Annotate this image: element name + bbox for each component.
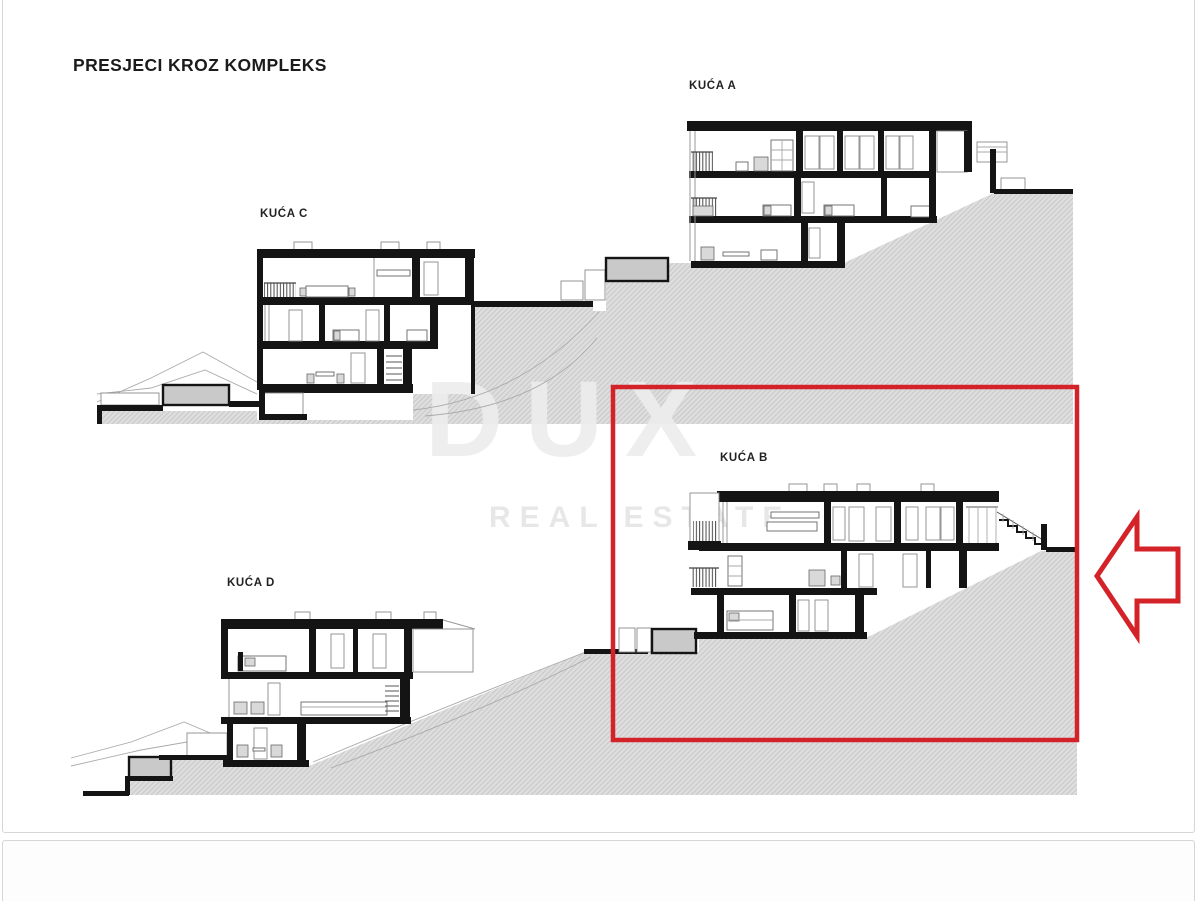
pool-lower [129, 757, 171, 778]
section-drawing: PRESJECI KROZ KOMPLEKS DUX REAL ESTATE [3, 0, 1194, 832]
house-label-kuca-b: KUĆA B [720, 451, 768, 464]
house-label-kuca-c: KUĆA C [260, 207, 308, 220]
next-sheet-preview [2, 840, 1195, 901]
left-arrow-annotation [1097, 517, 1178, 636]
watermark-brand: DUX [425, 358, 719, 479]
house-label-kuca-d: KUĆA D [227, 576, 275, 589]
watermark-tagline: REAL ESTATE [489, 501, 791, 534]
house-label-kuca-a: KUĆA A [689, 79, 736, 92]
drawing-sheet: PRESJECI KROZ KOMPLEKS DUX REAL ESTATE [2, 0, 1195, 833]
pool-upper [163, 385, 229, 405]
page-title: PRESJECI KROZ KOMPLEKS [73, 55, 327, 75]
